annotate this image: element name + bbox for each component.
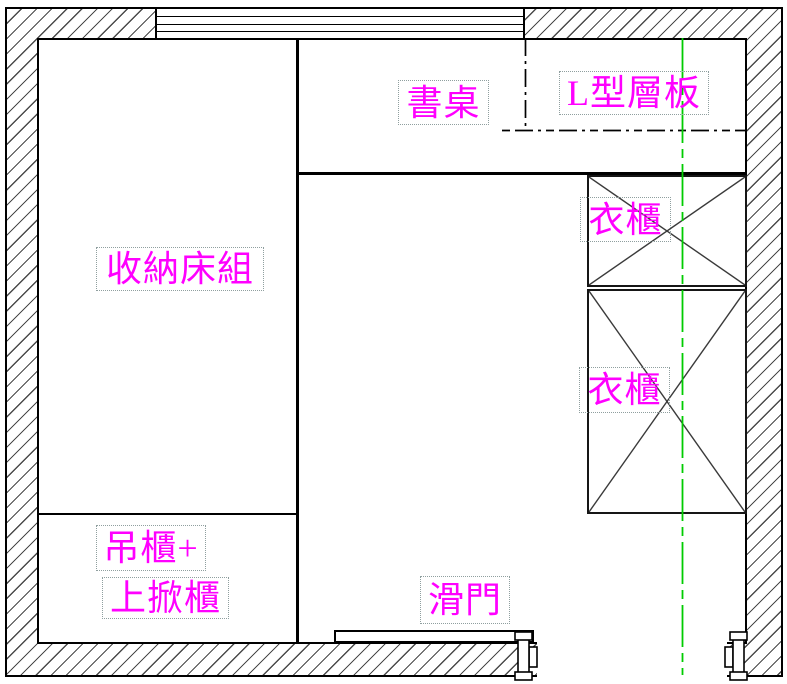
- bed-cabinet-divider-line: [37, 513, 297, 515]
- window-pane-line: [157, 16, 523, 17]
- floorplan-canvas: 收納床組 吊櫃+ 上掀櫃 書桌 L型層板 衣櫃 衣櫃 滑門: [0, 0, 787, 684]
- label-l-shape-shelf: L型層板: [559, 71, 709, 115]
- label-flip-up-cabinet: 上掀櫃: [102, 577, 229, 619]
- label-storage-bed: 收納床組: [96, 247, 264, 291]
- window-pane-line: [157, 31, 523, 32]
- sliding-door-panel: [334, 630, 534, 643]
- label-sliding-door: 滑門: [420, 576, 510, 624]
- window-pane-line: [157, 24, 523, 25]
- door-opening: [537, 640, 727, 682]
- label-wardrobe-lower: 衣櫃: [579, 367, 670, 413]
- label-hanging-cabinet: 吊櫃+: [96, 525, 206, 571]
- window-top-wall: [155, 9, 525, 38]
- label-wardrobe-upper: 衣櫃: [580, 197, 671, 242]
- label-desk: 書桌: [398, 80, 489, 125]
- partition-line: [296, 38, 299, 644]
